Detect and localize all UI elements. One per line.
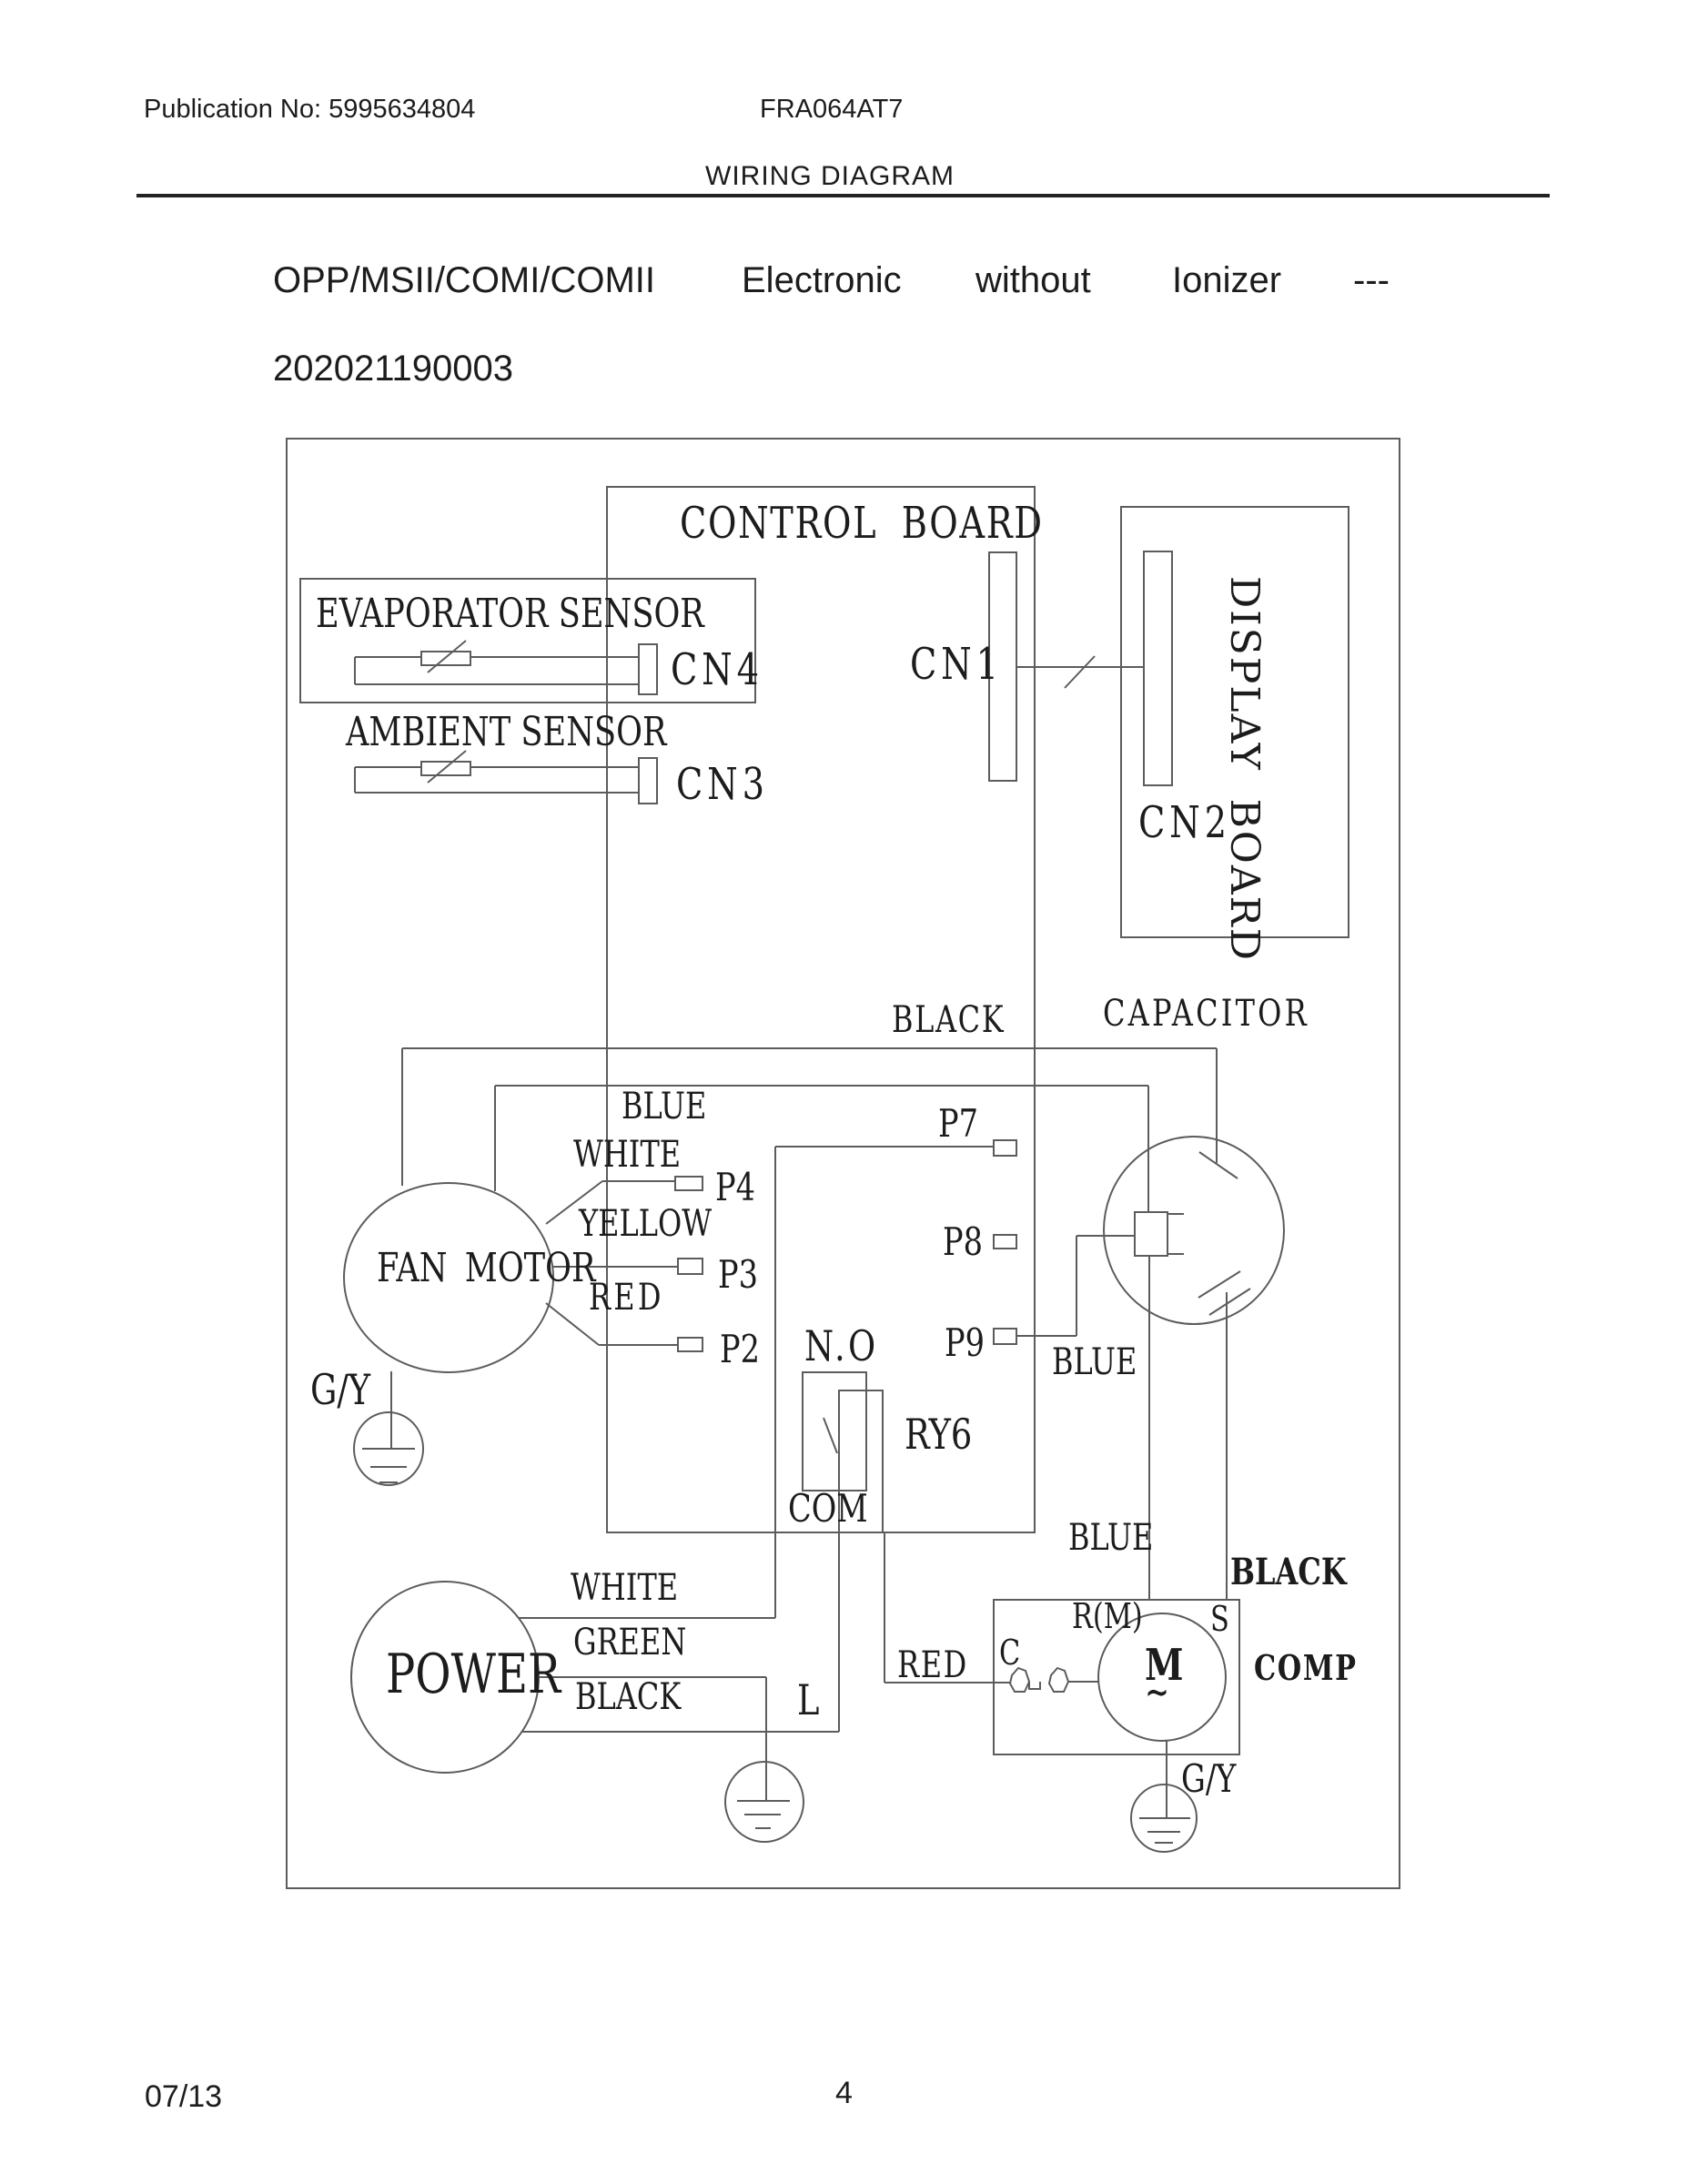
p7-label: P7: [938, 1105, 978, 1143]
fan-yellow-wire-label: YELLOW: [579, 1206, 712, 1242]
p2-label: P2: [720, 1330, 760, 1369]
compressor-label: COMP: [1254, 1651, 1358, 1685]
footer-date: 07/13: [145, 2081, 222, 2112]
relay-com-label: COM: [788, 1490, 868, 1528]
p3-label: P3: [718, 1256, 758, 1294]
comp-ground-label: G/Y: [1181, 1760, 1236, 1798]
capacitor-blue-wire-label: BLUE: [1052, 1344, 1137, 1380]
comp-common-terminal-label: C: [999, 1635, 1020, 1670]
power-white-wire-label: WHITE: [571, 1570, 678, 1606]
p9-label: P9: [945, 1324, 985, 1362]
comp-run-terminal-label: R(M): [1072, 1599, 1143, 1633]
title-word-dashes: ---: [1353, 262, 1390, 298]
ambient-sensor-label: AMBIENT SENSOR: [346, 713, 666, 753]
control-board-label: CONTROL BOARD: [680, 501, 1044, 545]
fan-blue-wire-label: BLUE: [622, 1088, 706, 1125]
p4-label: P4: [715, 1168, 755, 1207]
fan-black-wire-label: BLACK: [892, 1002, 1005, 1038]
page-title: WIRING DIAGRAM: [705, 163, 955, 190]
model-number: FRA064AT7: [760, 96, 903, 123]
compressor-blue-wire-label: BLUE: [1068, 1520, 1153, 1556]
power-label: POWER: [386, 1647, 561, 1702]
cn4-label: CN4: [671, 648, 763, 692]
cn1-label: CN1: [910, 642, 1003, 686]
evaporator-sensor-label: EVAPORATOR SENSOR: [316, 594, 704, 634]
title-word-without: without: [975, 262, 1091, 298]
motor-tilde: ∼: [1145, 1674, 1169, 1711]
comp-start-terminal-label: S: [1210, 1602, 1229, 1636]
display-board-label: DISPLAY BOARD: [1224, 576, 1264, 962]
fan-white-wire-label: WHITE: [573, 1137, 681, 1173]
footer-page-number: 4: [835, 2078, 853, 2108]
title-code: 202021190003: [273, 350, 513, 387]
fan-motor-label: FAN MOTOR: [377, 1249, 596, 1289]
fan-ground-label: G/Y: [310, 1369, 370, 1410]
relay-red-wire-label: RED: [897, 1647, 968, 1683]
compressor-black-wire-label: BLACK: [1230, 1554, 1347, 1591]
title-word-ionizer: Ionizer: [1172, 262, 1281, 298]
title-word-electronic: Electronic: [742, 262, 902, 298]
wiring-diagram-art: [0, 0, 1688, 2184]
cn3-label: CN3: [676, 763, 769, 806]
p8-label: P8: [943, 1223, 983, 1261]
relay-ry6-label: RY6: [905, 1413, 972, 1455]
document-page: Publication No: 5995634804 FRA064AT7 WIR…: [0, 0, 1688, 2184]
relay-no-label: N.O: [804, 1325, 878, 1367]
publication-number: Publication No: 5995634804: [144, 96, 475, 123]
line-terminal-label: L: [797, 1679, 819, 1721]
power-green-wire-label: GREEN: [573, 1624, 686, 1661]
fan-red-wire-label: RED: [589, 1279, 664, 1316]
power-black-wire-label: BLACK: [575, 1679, 681, 1715]
title-word-models: OPP/MSII/COMI/COMII: [273, 262, 655, 298]
cn2-label: CN2: [1138, 801, 1231, 844]
capacitor-label: CAPACITOR: [1103, 996, 1309, 1032]
